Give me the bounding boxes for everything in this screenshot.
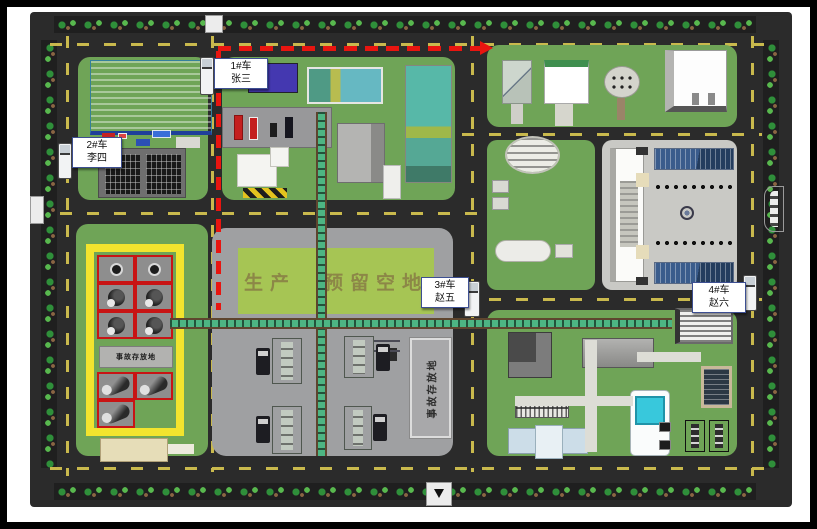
storage-tank-icon [108,289,125,306]
truck-marker-2[interactable] [58,143,72,179]
storage-tank-icon [101,402,131,425]
road-centerline-left [66,36,69,476]
tank-farm-enclosure: 事故存放地 [86,244,184,436]
blue-warehouse [90,60,212,135]
walkway [176,137,200,148]
block-office-pad [602,140,737,290]
block-production-pad: 生产 预留空地 事故存放地 [212,228,453,456]
conveyor-vertical [316,112,327,456]
tank-cell [97,255,135,283]
truck-cab [202,59,212,69]
dock-truck [256,416,270,443]
tree-belt-left [41,40,57,468]
cream-building-walk [168,444,194,454]
car [270,123,277,137]
dark-gray-building-wing [509,333,536,362]
parking-row-dots [654,240,734,246]
green-roof-building [544,60,589,104]
cyan-pool [635,396,665,425]
storage-tank-icon [146,317,163,334]
road-centerline-h-right-upper [462,133,762,136]
tank-cell-grid-upper [97,255,173,339]
blue-truck [152,130,171,138]
tank-cell [135,311,173,339]
valve-icon [148,263,161,276]
vehicle-4-number: 4#车 [695,285,743,298]
gray-building [337,123,385,183]
tree-belt-right [763,40,779,468]
cream-building [100,438,168,462]
valve-icon [110,263,123,276]
gate-west [30,196,44,224]
office-tower [665,50,727,112]
striped-warehouse [675,308,733,344]
tank-cell [97,400,135,428]
tank-cell [135,372,173,400]
admin-annex [636,245,649,259]
vehicle-label-1[interactable]: 1#车 张三 [214,58,268,89]
large-pond [405,65,452,183]
walkway [515,396,633,406]
transformer-cabinet [685,420,705,452]
production-reserved-sign: 生产 预留空地 [238,248,434,314]
tank-cell [97,283,135,311]
conveyor-horizontal [170,318,672,329]
accident-storage-text-rotated: 事故存放地 [423,358,438,418]
light-blue-building-center [535,425,563,459]
roof-unit [636,147,648,155]
tank-cell [135,283,173,311]
vehicle-label-4[interactable]: 4#车 赵六 [692,282,746,313]
vehicle-2-driver: 李四 [75,153,119,166]
tree-belt-bottom [54,483,756,500]
empty-cell [135,400,173,428]
vehicle-1-number: 1#车 [217,61,265,74]
dock-truck [376,344,390,371]
light-blue-building [508,428,588,454]
small-structure [555,244,573,258]
dark-blue-building [701,366,732,408]
pump-unit [659,440,671,450]
pipe-line [374,340,400,342]
tower-window [692,93,699,105]
vehicle-label-3[interactable]: 3#车 赵五 [421,277,469,308]
tank-cell [97,311,135,339]
vehicle-1-driver: 张三 [217,74,265,87]
utility-pad [492,180,509,193]
solar-canopy [654,262,734,284]
loading-dock-building [272,406,302,454]
route-arrow-icon [480,41,493,55]
warehouse-door [136,139,150,146]
site-map-page: 事故存放地 生产 预留空地 [0,0,817,529]
storage-tank-icon [146,289,163,306]
gate-north [205,15,223,33]
admin-core [620,181,638,247]
walkway [637,352,701,362]
truck-cab [60,145,70,155]
building-path [555,104,573,126]
road-centerline-right [751,36,754,476]
accident-storage-sign-rotated: 事故存放地 [410,338,451,438]
loading-dock-building [272,338,302,384]
truck-marker-1[interactable] [200,57,214,95]
road-centerline-v2 [471,36,474,472]
curved-structure [495,240,551,262]
block-tank-farm: 事故存放地 [76,224,208,456]
hazard-stripe-zone [243,188,287,198]
billboard-panel [502,60,532,104]
dock-truck [373,414,387,441]
storage-tank-icon [101,374,131,397]
parking-row-dots [654,184,734,190]
solar-panel [146,154,181,194]
vehicle-3-driver: 赵五 [424,293,466,306]
pump-unit [659,422,671,432]
tank-cell-grid-lower [97,372,173,428]
treatment-pool [307,67,383,104]
white-building-annex [270,147,289,167]
car [285,117,293,138]
plaza-emblem [680,206,694,220]
road-centerline-bottom [50,467,766,470]
fire-truck [249,117,258,140]
vehicle-label-2[interactable]: 2#车 李四 [72,137,122,168]
tower-window [708,93,715,105]
dock-truck [256,348,270,375]
billboard-post [511,104,523,124]
roof-unit [636,277,648,285]
small-white-building [383,165,401,199]
fire-truck [234,115,243,140]
block-top-left [78,57,208,200]
utility-pad [492,197,509,210]
road-centerline-h-left [60,212,478,215]
vehicle-3-number: 3#车 [424,280,466,293]
transformer-cabinet [709,420,729,452]
production-sign-text-1: 生产 [244,268,296,295]
accident-storage-sign: 事故存放地 [99,346,173,368]
gate-arrow-icon [434,489,444,498]
route-path-vertical [216,51,221,310]
tank-cell [135,255,173,283]
storage-tank-icon [139,374,169,397]
admin-building [610,148,644,282]
tank-cell [97,372,135,400]
loading-dock-building [344,406,372,450]
block-top-right [487,45,737,127]
oval-structure [505,136,560,174]
bike-shelter-oval [604,66,640,98]
site-map: 事故存放地 生产 预留空地 [30,12,792,507]
accident-storage-text: 事故存放地 [116,352,156,362]
shelter-post [617,98,625,120]
gate-south [426,482,452,506]
loading-dock-building [344,336,374,378]
tree-belt-top [54,16,756,33]
vehicle-2-number: 2#车 [75,140,119,153]
solar-canopy [654,148,734,170]
route-path-horizontal [218,46,480,51]
block-middle-strip [487,140,595,290]
vehicle-4-driver: 赵六 [695,298,743,311]
block-bottom-right [487,310,737,456]
truck-cab [745,277,755,287]
admin-annex [636,173,649,187]
dark-gray-building [508,332,552,378]
gate-east-arch [764,186,784,232]
storage-tank-icon [108,317,125,334]
production-sign-text-2: 预留空地 [324,268,428,295]
